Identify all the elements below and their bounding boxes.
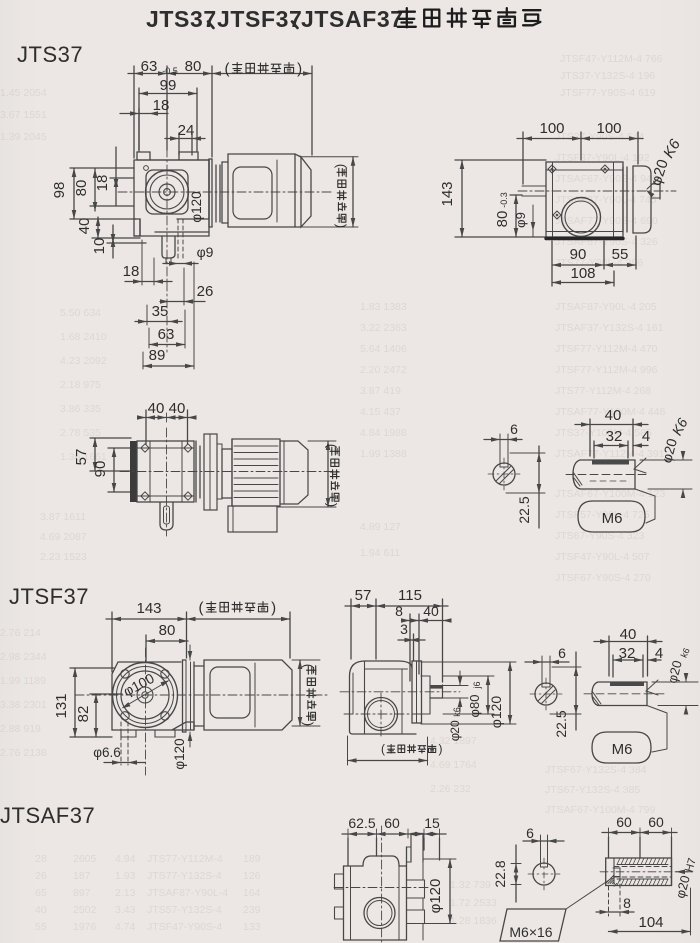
- svg-text:-0.3: -0.3: [499, 192, 509, 208]
- svg-text:JTSAF87-Y90L-4: JTSAF87-Y90L-4: [147, 887, 228, 899]
- svg-text:M6: M6: [612, 741, 633, 758]
- svg-text:20: 20: [448, 720, 462, 734]
- svg-text:4.74: 4.74: [115, 921, 136, 933]
- svg-text:22.8: 22.8: [492, 860, 508, 887]
- svg-text:JTSAF67-Y100M-4 799: JTSAF67-Y100M-4 799: [545, 804, 655, 816]
- svg-text:8: 8: [395, 603, 403, 619]
- svg-text:JTSAF37-Y132S-4 161: JTSAF37-Y132S-4 161: [555, 322, 664, 334]
- svg-text:100: 100: [596, 120, 621, 137]
- svg-text:6: 6: [510, 421, 518, 437]
- svg-text:40: 40: [148, 400, 165, 417]
- svg-text:60: 60: [616, 814, 632, 830]
- svg-text:15: 15: [424, 815, 440, 831]
- svg-text:JTS77-Y112M-4 268: JTS77-Y112M-4 268: [555, 385, 651, 397]
- svg-text:189: 189: [243, 853, 261, 865]
- svg-text:4.15 437: 4.15 437: [360, 406, 401, 418]
- svg-text:JTSF47-Y90S-4: JTSF47-Y90S-4: [147, 921, 222, 933]
- svg-text:108: 108: [570, 265, 595, 282]
- svg-text:(: (: [225, 60, 230, 77]
- svg-text:40: 40: [620, 626, 637, 643]
- svg-text:JTS37-Y132S-4 196: JTS37-Y132S-4 196: [560, 70, 655, 82]
- svg-text:JTSAF37: JTSAF37: [301, 6, 404, 32]
- svg-text:104: 104: [638, 914, 663, 931]
- svg-text:239: 239: [243, 904, 261, 916]
- svg-text:55: 55: [612, 246, 629, 263]
- svg-text:4.84 1988: 4.84 1988: [360, 427, 407, 439]
- svg-text:2.13: 2.13: [115, 887, 136, 899]
- svg-text:60: 60: [648, 814, 664, 830]
- svg-text:62.5: 62.5: [348, 815, 375, 831]
- svg-text:55: 55: [35, 921, 47, 933]
- svg-text:): ): [297, 60, 302, 77]
- svg-text:(: (: [332, 223, 347, 228]
- svg-text:60: 60: [384, 815, 400, 831]
- svg-text:98: 98: [51, 182, 68, 199]
- svg-text:57: 57: [355, 587, 372, 604]
- svg-text:JTSF37: JTSF37: [9, 584, 89, 609]
- svg-text:90: 90: [570, 246, 587, 263]
- svg-text:k6: k6: [452, 707, 462, 717]
- svg-text:18: 18: [153, 97, 170, 114]
- svg-text:5.64 1406: 5.64 1406: [360, 343, 407, 355]
- svg-text:M6×16: M6×16: [509, 924, 552, 940]
- svg-text:3.87 1611: 3.87 1611: [40, 511, 86, 523]
- svg-text:JTS67-Y132S-4 385: JTS67-Y132S-4 385: [545, 784, 640, 796]
- svg-text:40: 40: [423, 603, 439, 619]
- svg-text:2.78 535: 2.78 535: [60, 427, 101, 439]
- svg-text:1.68 2410: 1.68 2410: [60, 331, 107, 343]
- svg-text:JTSAF67-Y90S-4 946: JTSAF67-Y90S-4 946: [555, 173, 658, 185]
- svg-text:2.98 2344: 2.98 2344: [0, 651, 47, 663]
- svg-text:JTSF67-Y90S-4 270: JTSF67-Y90S-4 270: [555, 572, 651, 584]
- svg-text:φ120: φ120: [427, 879, 444, 914]
- svg-text:40: 40: [35, 904, 47, 916]
- svg-text:8: 8: [623, 895, 631, 911]
- svg-text:JTSAF37: JTSAF37: [0, 803, 95, 828]
- svg-text:JTSF77-Y112M-4 470: JTSF77-Y112M-4 470: [555, 343, 658, 355]
- svg-text:2.88 919: 2.88 919: [0, 723, 41, 735]
- svg-text:143: 143: [439, 181, 456, 206]
- svg-text:126: 126: [243, 870, 261, 882]
- svg-text:82: 82: [75, 706, 92, 723]
- svg-text:2.20 2472: 2.20 2472: [360, 364, 407, 376]
- svg-text:2.76 214: 2.76 214: [0, 627, 41, 639]
- svg-text:(: (: [299, 721, 314, 726]
- svg-text:32: 32: [606, 428, 623, 445]
- svg-text:1.93: 1.93: [115, 870, 136, 882]
- svg-text:4.94: 4.94: [115, 853, 136, 865]
- svg-text:57: 57: [73, 449, 90, 466]
- svg-text:(: (: [323, 502, 338, 507]
- svg-text:6: 6: [558, 645, 566, 661]
- svg-text:1.94 611: 1.94 611: [360, 547, 400, 559]
- svg-text:28: 28: [35, 853, 47, 865]
- svg-text:18: 18: [94, 175, 111, 192]
- svg-text:φ9: φ9: [513, 212, 528, 228]
- svg-text:1.32 739: 1.32 739: [450, 879, 491, 891]
- svg-text:j6: j6: [472, 681, 482, 689]
- svg-text:φ120: φ120: [172, 738, 187, 769]
- svg-text:4.69 2087: 4.69 2087: [40, 531, 87, 543]
- svg-text:1.72 2533: 1.72 2533: [450, 897, 497, 909]
- svg-text:4.69 1764: 4.69 1764: [430, 759, 477, 771]
- svg-text:5.50 634: 5.50 634: [60, 307, 101, 319]
- svg-text:JTS57-Y132S-4: JTS57-Y132S-4: [147, 904, 222, 916]
- svg-text:JTS37: JTS37: [17, 42, 83, 67]
- svg-text:80: 80: [185, 58, 202, 75]
- svg-text:(: (: [199, 599, 204, 616]
- svg-text:M6: M6: [602, 510, 623, 527]
- svg-text:(: (: [381, 742, 385, 756]
- svg-text:90: 90: [92, 461, 109, 478]
- svg-text:JTS37-Y100M-4 585: JTS37-Y100M-4 585: [555, 427, 652, 439]
- svg-text:10: 10: [91, 238, 108, 255]
- svg-text:131: 131: [53, 693, 70, 718]
- svg-text:JTSF47-Y112M-4 766: JTSF47-Y112M-4 766: [560, 53, 663, 65]
- svg-text:-0.5: -0.5: [162, 66, 178, 76]
- svg-text:3: 3: [400, 621, 408, 637]
- svg-text:4: 4: [642, 428, 650, 445]
- svg-text:35: 35: [152, 303, 169, 320]
- svg-text:φ120: φ120: [189, 191, 204, 222]
- svg-text:133: 133: [243, 921, 261, 933]
- svg-text:26: 26: [197, 283, 214, 300]
- svg-text:80: 80: [159, 622, 176, 639]
- svg-text:18: 18: [123, 263, 140, 280]
- svg-text:1.28 1836: 1.28 1836: [450, 915, 497, 927]
- svg-text:3.38 2301: 3.38 2301: [0, 699, 47, 711]
- svg-text:1.83 1383: 1.83 1383: [360, 301, 407, 313]
- svg-text:2.26 232: 2.26 232: [430, 783, 471, 795]
- svg-text:40: 40: [169, 400, 186, 417]
- svg-text:115: 115: [398, 587, 422, 604]
- svg-text:1.45 2054: 1.45 2054: [0, 87, 47, 99]
- svg-text:89: 89: [149, 347, 166, 364]
- svg-text:1.99 1189: 1.99 1189: [0, 675, 46, 687]
- svg-text:2.76 2138: 2.76 2138: [0, 747, 47, 759]
- svg-text:2502: 2502: [73, 904, 97, 916]
- svg-text:2605: 2605: [73, 853, 97, 865]
- svg-text:24: 24: [178, 122, 195, 139]
- svg-text:99: 99: [160, 77, 177, 94]
- svg-text:897: 897: [73, 887, 91, 899]
- svg-text:JTS37: JTS37: [146, 6, 217, 32]
- svg-text:6: 6: [526, 825, 534, 841]
- svg-text:φ6.6: φ6.6: [93, 745, 121, 760]
- svg-text:2.23 1523: 2.23 1523: [40, 551, 87, 563]
- svg-text:JTS77-Y132S-4: JTS77-Y132S-4: [147, 870, 222, 882]
- svg-text:φ120: φ120: [488, 696, 504, 729]
- svg-text:100: 100: [539, 120, 564, 137]
- svg-text:2.18 975: 2.18 975: [60, 379, 101, 391]
- svg-text:40: 40: [605, 407, 622, 424]
- svg-text:1976: 1976: [73, 921, 97, 933]
- svg-text:4.23 2092: 4.23 2092: [60, 355, 107, 367]
- svg-text:40: 40: [76, 218, 93, 235]
- svg-text:): ): [438, 742, 442, 756]
- svg-text:80: 80: [494, 211, 511, 228]
- svg-text:φ9: φ9: [197, 244, 214, 260]
- svg-text:JTSF77-Y112M-4 996: JTSF77-Y112M-4 996: [555, 364, 658, 376]
- svg-text:3.86 335: 3.86 335: [60, 403, 101, 415]
- svg-text:80: 80: [73, 180, 90, 197]
- svg-text:JTSF37: JTSF37: [217, 6, 302, 32]
- svg-text:3.87 419: 3.87 419: [360, 385, 401, 397]
- svg-text:1.99 1388: 1.99 1388: [360, 448, 407, 460]
- svg-text:JTSF77-Y90S-4 619: JTSF77-Y90S-4 619: [560, 87, 656, 99]
- svg-text:26: 26: [35, 870, 47, 882]
- svg-text:JTS77-Y90L-4 396: JTS77-Y90L-4 396: [555, 257, 643, 269]
- svg-text:63: 63: [141, 58, 158, 75]
- svg-text:164: 164: [243, 887, 261, 899]
- svg-text:3.22 2363: 3.22 2363: [360, 322, 407, 334]
- svg-text:): ): [323, 444, 338, 448]
- svg-text:65: 65: [35, 887, 47, 899]
- svg-text:63: 63: [158, 326, 175, 343]
- svg-text:JTSAF87-Y90L-4 205: JTSAF87-Y90L-4 205: [555, 301, 657, 313]
- svg-text:187: 187: [73, 870, 91, 882]
- svg-text:1.39 2045: 1.39 2045: [0, 131, 47, 143]
- svg-text:): ): [332, 164, 347, 168]
- svg-text:): ): [299, 664, 314, 668]
- svg-text:22.5: 22.5: [516, 496, 532, 523]
- svg-text:JTS77-Y112M-4: JTS77-Y112M-4: [147, 853, 223, 865]
- svg-text:143: 143: [136, 600, 161, 617]
- svg-text:): ): [271, 599, 276, 616]
- svg-text:JTSAF77-Y90S-4 690: JTSAF77-Y90S-4 690: [555, 215, 658, 227]
- svg-text:3.67 1551: 3.67 1551: [0, 109, 47, 121]
- svg-text:JTSAF77-Y112M-4 391: JTSAF77-Y112M-4 391: [555, 448, 665, 460]
- svg-text:4.89 127: 4.89 127: [360, 521, 401, 533]
- svg-text:3.43: 3.43: [115, 904, 136, 916]
- svg-text:JTSF67-Y132S-4 384: JTSF67-Y132S-4 384: [545, 764, 647, 776]
- svg-text:φ80: φ80: [467, 695, 482, 718]
- svg-text:JTSF47-Y90L-4 507: JTSF47-Y90L-4 507: [555, 551, 650, 563]
